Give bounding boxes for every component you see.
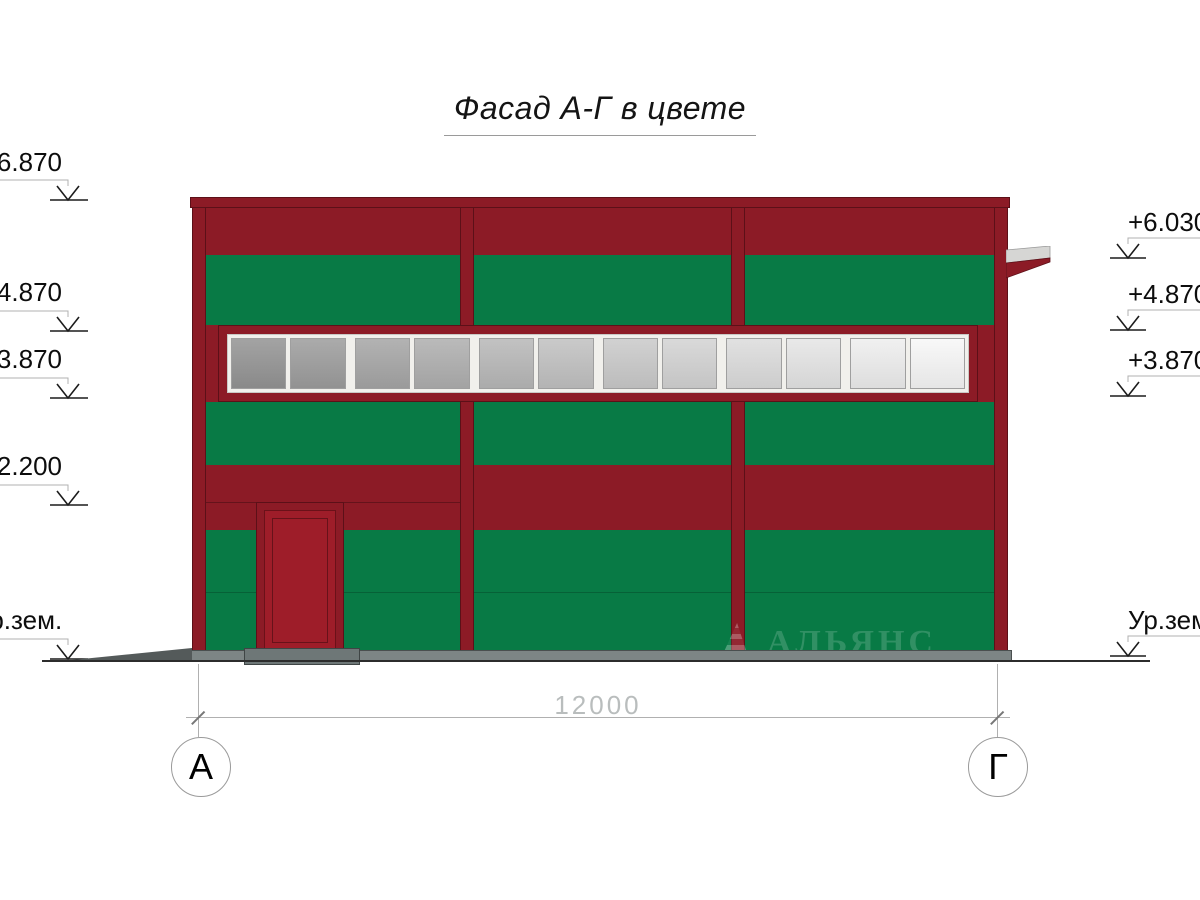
extension-line [997,664,998,737]
window-pane [910,338,965,389]
elevation-label-right-ground: Ур.зем. [1128,605,1200,635]
elevation-label-right-6030: +6.030 [1128,207,1200,237]
door-threshold [244,648,360,665]
elevation-label-left-4870: +4.870 [0,277,62,307]
green-panel-band-middle [192,402,1008,465]
window-pane [603,338,658,389]
green-panel-band-upper [192,255,1008,325]
elevation-mark-icon [1100,237,1200,261]
window-pane [786,338,841,389]
elevation-mark-icon [0,310,100,334]
window-pane-row [231,338,965,389]
elevation-mark-icon [0,484,100,508]
window-pane [414,338,469,389]
dimension-value: 12000 [498,690,698,721]
axis-bubble-g: Г [968,737,1028,797]
pilaster-strip [731,208,745,655]
window-pane [355,338,410,389]
elevation-mark-icon [1100,375,1200,399]
window-pane [850,338,905,389]
drawing-title: Фасад А-Г в цвете [444,90,756,136]
elevation-mark-icon [1100,635,1200,659]
window-pane [538,338,593,389]
ground-line [42,660,1150,662]
window-frame [227,334,969,393]
window-pane [479,338,534,389]
elevation-label-left-ground: Ур.зем. [0,605,62,635]
elevation-mark-icon [0,377,100,401]
elevation-label-left-2200: +2.200 [0,451,62,481]
window-pane [290,338,345,389]
axis-bubble-a: А [171,737,231,797]
extension-line [198,664,199,737]
door-leaf [264,510,336,651]
facade-drawing: Фасад А-Г в цвете +6.870 +4.870 +3.870 +… [0,0,1200,900]
window-pane [726,338,781,389]
elevation-label-left-3870: +3.870 [0,344,62,374]
page-title: Фасад А-Г в цвете [0,90,1200,136]
pilaster-strip [192,208,206,655]
elevation-label-right-3870: +3.870 [1128,345,1200,375]
entrance-door [256,502,344,655]
elevation-mark-icon [0,179,100,203]
logo-tagline: строительная компания [767,665,937,677]
window-pane [231,338,286,389]
door-panel-inset [272,518,328,643]
ribbon-window-band [218,325,978,402]
window-pane [662,338,717,389]
elevation-label-left-6870: +6.870 [0,147,62,177]
parapet-cap [190,197,1010,208]
pilaster-strip [460,208,474,655]
elevation-label-right-4870: +4.870 [1128,279,1200,309]
canopy-visor [1006,246,1052,280]
elevation-mark-icon [1100,309,1200,333]
